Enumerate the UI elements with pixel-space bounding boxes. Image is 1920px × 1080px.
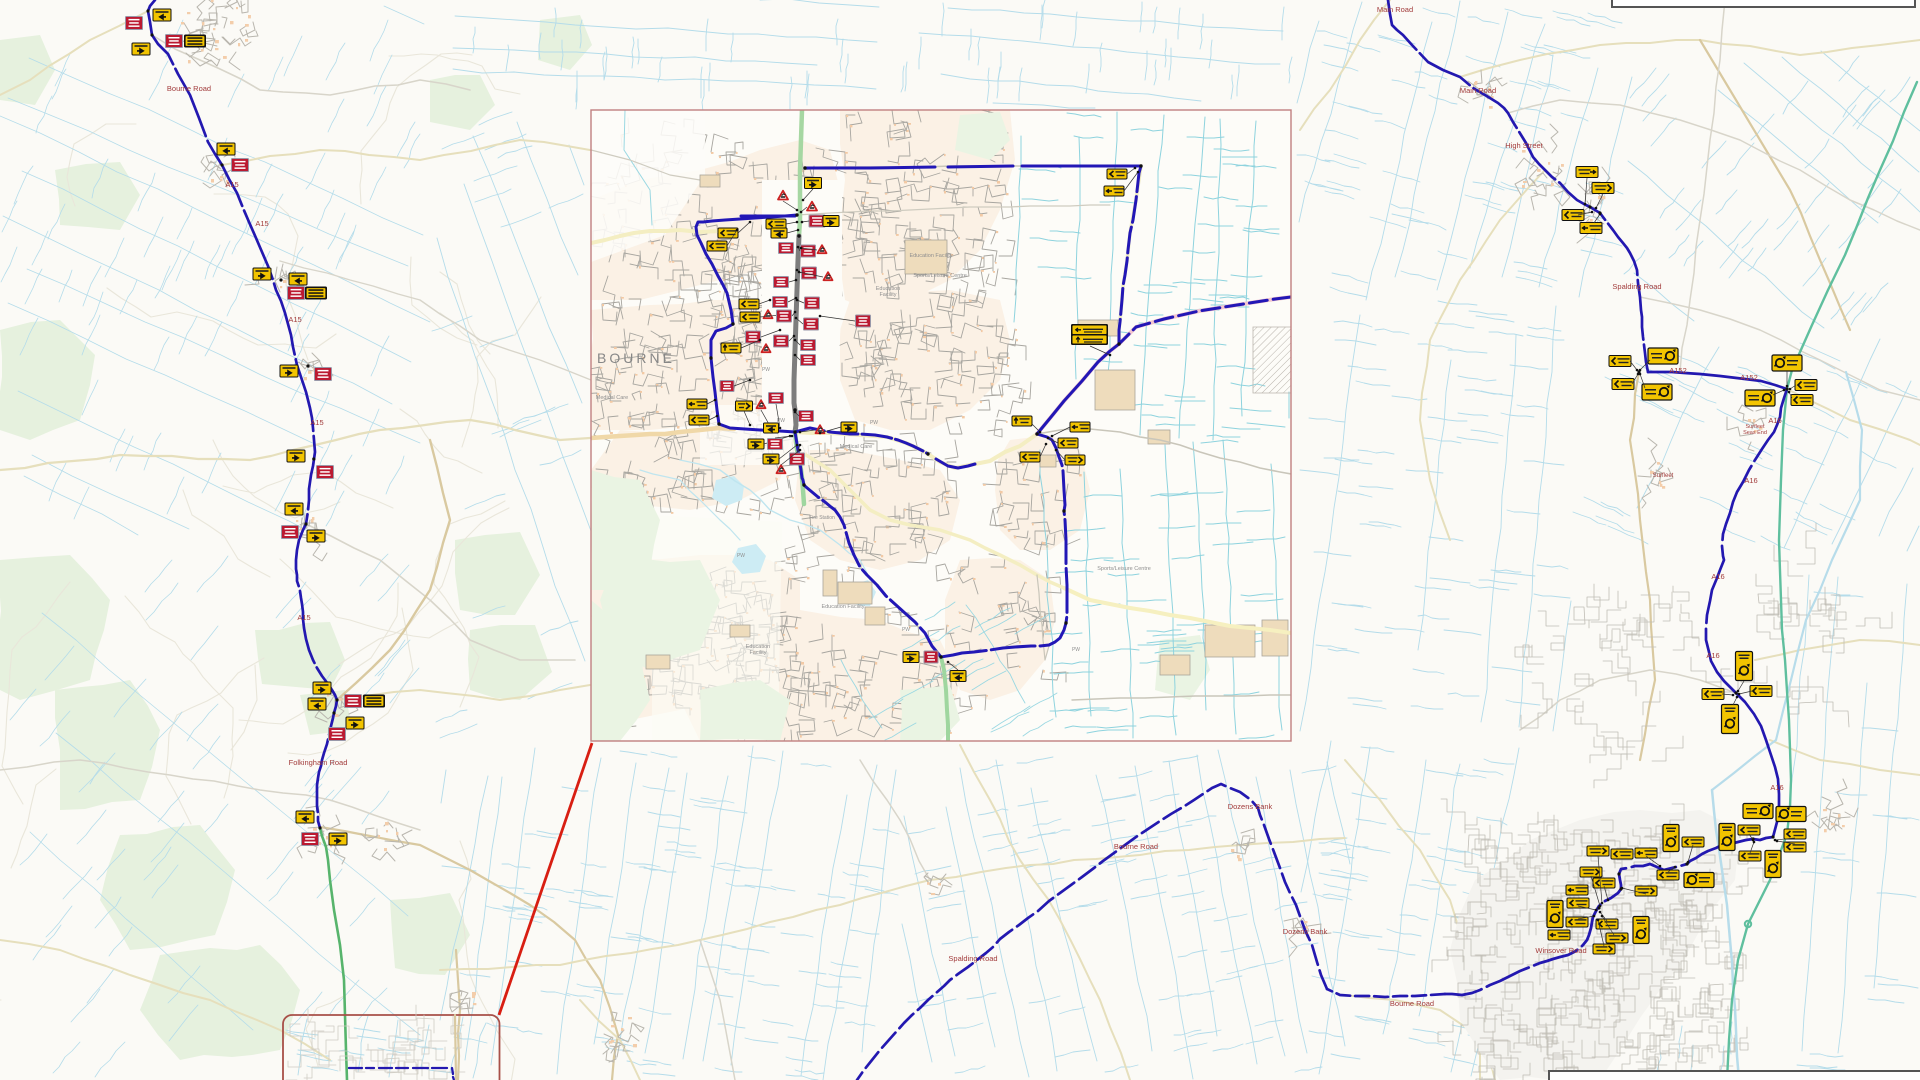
svg-text:Seas End: Seas End [1743,430,1767,436]
svg-text:A15: A15 [255,219,268,228]
svg-text:A15: A15 [297,613,310,622]
svg-text:Education Facility: Education Facility [821,604,864,610]
svg-text:BOURNE: BOURNE [597,350,675,366]
svg-text:Bourne Road: Bourne Road [1114,842,1158,851]
svg-text:High Street: High Street [1505,141,1543,150]
svg-text:Dozens Bank: Dozens Bank [1283,927,1328,936]
svg-text:A16: A16 [1711,572,1724,581]
svg-text:A15: A15 [225,180,238,189]
svg-text:A15: A15 [310,418,323,427]
svg-text:Sports/Leisure Centre: Sports/Leisure Centre [913,273,967,279]
svg-text:A16: A16 [1770,783,1783,792]
svg-text:Sports/Leisure Centre: Sports/Leisure Centre [1097,566,1151,572]
svg-text:Education Facility: Education Facility [909,253,952,259]
svg-text:A16: A16 [1706,651,1719,660]
svg-text:A152: A152 [1669,366,1687,375]
svg-text:PW: PW [737,553,745,559]
svg-text:Main Road: Main Road [1460,86,1496,95]
svg-text:Surfleet: Surfleet [1653,473,1674,479]
svg-text:Winsover Road: Winsover Road [1535,946,1586,955]
svg-text:Main Road: Main Road [1377,5,1413,14]
svg-text:Bourne Road: Bourne Road [167,84,211,93]
svg-text:PW: PW [1072,647,1080,653]
svg-text:Facility: Facility [749,650,766,656]
svg-text:PW: PW [870,420,878,426]
svg-text:PW: PW [762,367,770,373]
svg-text:Facility: Facility [879,292,896,298]
svg-text:A152: A152 [1740,373,1758,382]
svg-text:A16: A16 [1768,416,1781,425]
svg-text:Medical Care: Medical Care [840,444,872,450]
svg-text:A16: A16 [1744,476,1757,485]
svg-text:Dozens Bank: Dozens Bank [1228,802,1273,811]
svg-text:Spalding Road: Spalding Road [948,954,997,963]
svg-text:Spalding Road: Spalding Road [1612,282,1661,291]
svg-text:Folkingham Road: Folkingham Road [289,758,348,767]
svg-text:Medical Care: Medical Care [596,395,628,401]
svg-text:PW: PW [902,627,910,633]
svg-text:A15: A15 [288,315,301,324]
svg-text:Bourne Road: Bourne Road [1390,999,1434,1008]
svg-text:Fire Station: Fire Station [809,515,835,521]
